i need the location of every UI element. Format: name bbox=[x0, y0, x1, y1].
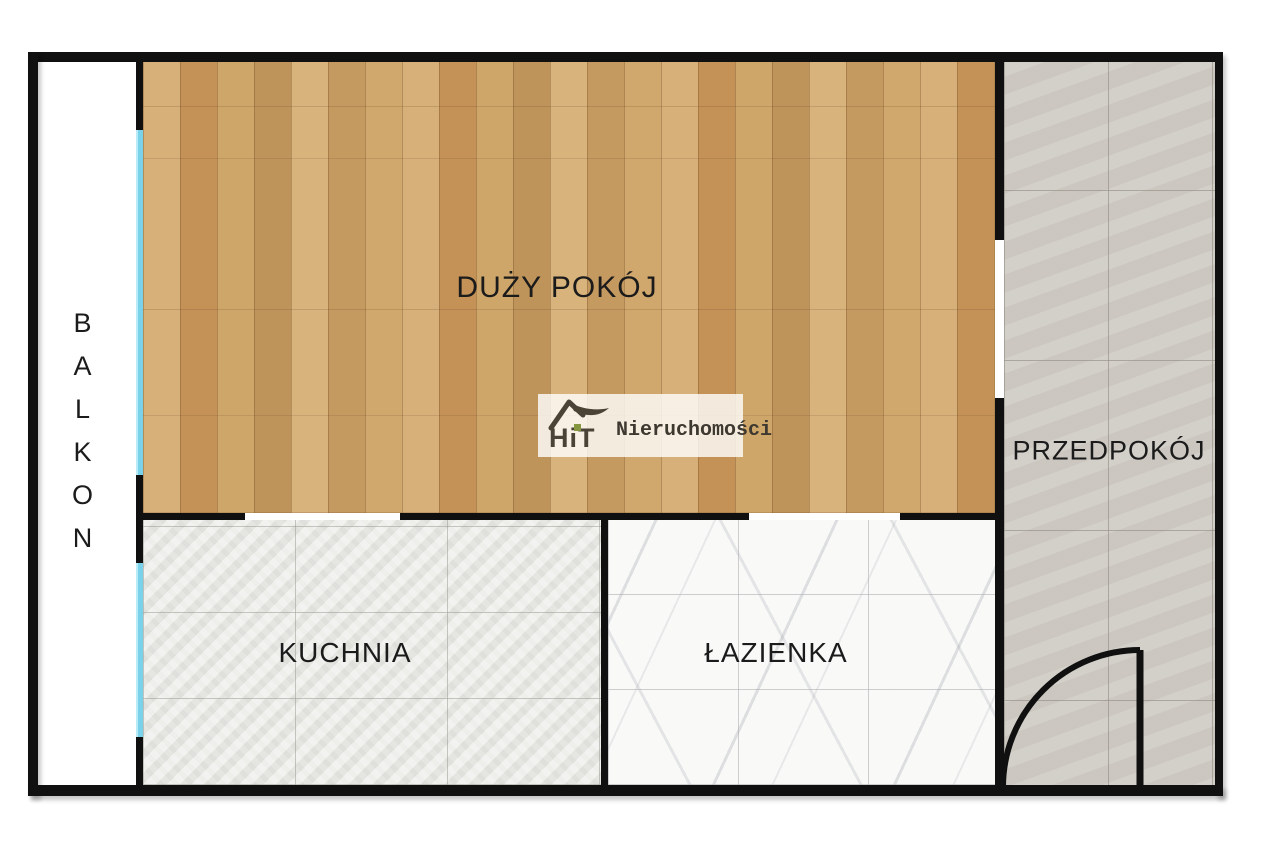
wall-kitchen-bathroom bbox=[601, 513, 608, 787]
logo-green-window-icon bbox=[574, 424, 581, 431]
door-arc bbox=[1003, 650, 1140, 787]
kitchen-window bbox=[136, 563, 143, 737]
wall-balcony-lower bbox=[136, 737, 143, 787]
wall-living-kitchen-left bbox=[143, 513, 245, 520]
agency-logo: HiT bbox=[546, 397, 610, 455]
bathroom-label: ŁAZIENKA bbox=[704, 637, 847, 669]
living-room-label: DUŻY POKÓJ bbox=[456, 271, 657, 305]
wall-living-kitchen-right bbox=[400, 513, 749, 520]
entrance-door-swing bbox=[995, 640, 1225, 800]
hallway-label: PRZEDPOKÓJ bbox=[1012, 436, 1205, 467]
wall-top bbox=[28, 52, 1223, 62]
floor-plan: DUŻY POKÓJ KUCHNIA ŁAZIENKA PRZEDPOKÓJ B… bbox=[0, 0, 1280, 854]
balcony-label: BALKON bbox=[67, 308, 98, 566]
kitchen-label: KUCHNIA bbox=[278, 637, 411, 669]
agency-subtitle-text: Nieruchomości bbox=[616, 419, 772, 442]
wall-left bbox=[28, 52, 38, 796]
wall-living-hall-upper bbox=[995, 62, 1004, 240]
agency-watermark: HiT Nieruchomości bbox=[538, 394, 743, 457]
wall-balcony-middle bbox=[136, 475, 143, 563]
living-room-window bbox=[136, 130, 143, 475]
wall-living-bathroom bbox=[900, 513, 1004, 520]
agency-brand-text: HiT bbox=[549, 423, 596, 454]
wall-balcony-upper bbox=[136, 62, 143, 130]
